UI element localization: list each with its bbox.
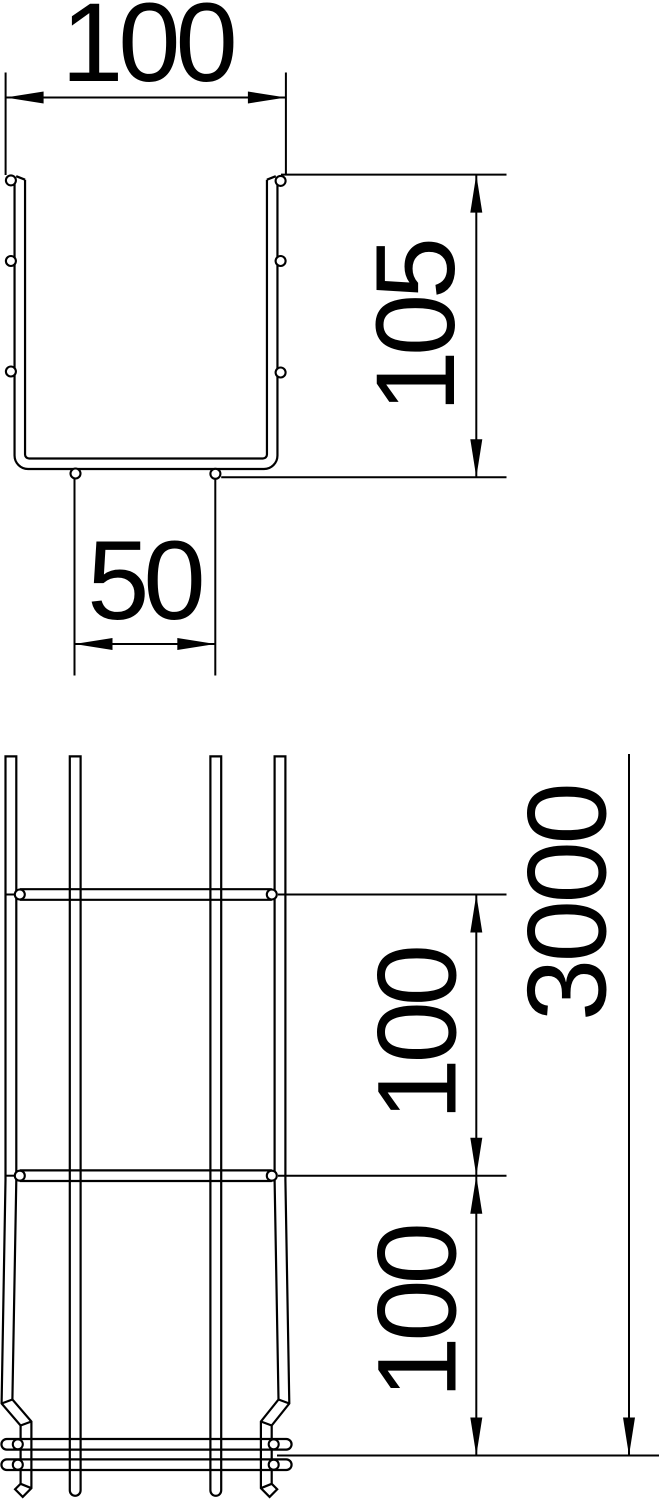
svg-text:100: 100 [355, 1226, 480, 1398]
svg-text:100: 100 [61, 0, 233, 105]
svg-text:105: 105 [353, 241, 478, 412]
svg-text:3000: 3000 [505, 786, 630, 1022]
svg-text:100: 100 [355, 948, 480, 1120]
svg-text:50: 50 [87, 518, 201, 643]
